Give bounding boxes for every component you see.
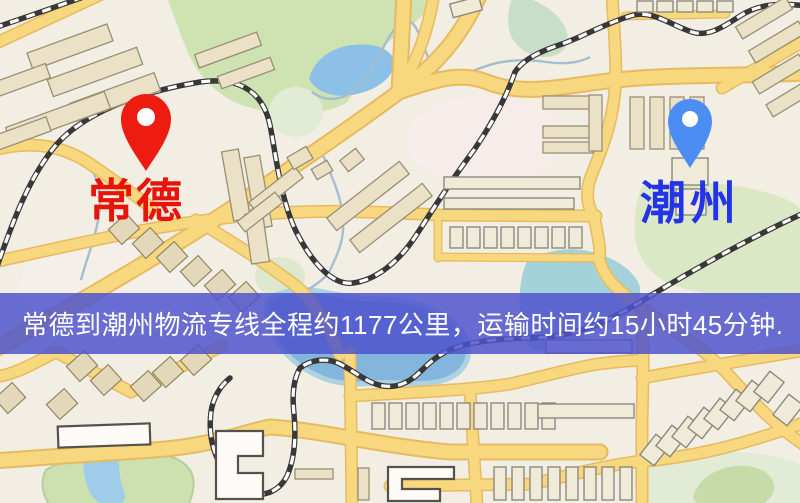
map-canvas (0, 0, 800, 503)
route-info-text: 常德到潮州物流专线全程约1177公里，运输时间约15小时45分钟. (0, 305, 783, 342)
logistics-route-map: 常德 潮州 常德到潮州物流专线全程约1177公里，运输时间约15小时45分钟. (0, 0, 800, 503)
destination-city-label: 潮州 (640, 180, 740, 226)
land-tint (405, 95, 565, 185)
origin-city-label: 常德 (88, 178, 184, 224)
route-info-banner: 常德到潮州物流专线全程约1177公里，运输时间约15小时45分钟. (0, 293, 800, 354)
